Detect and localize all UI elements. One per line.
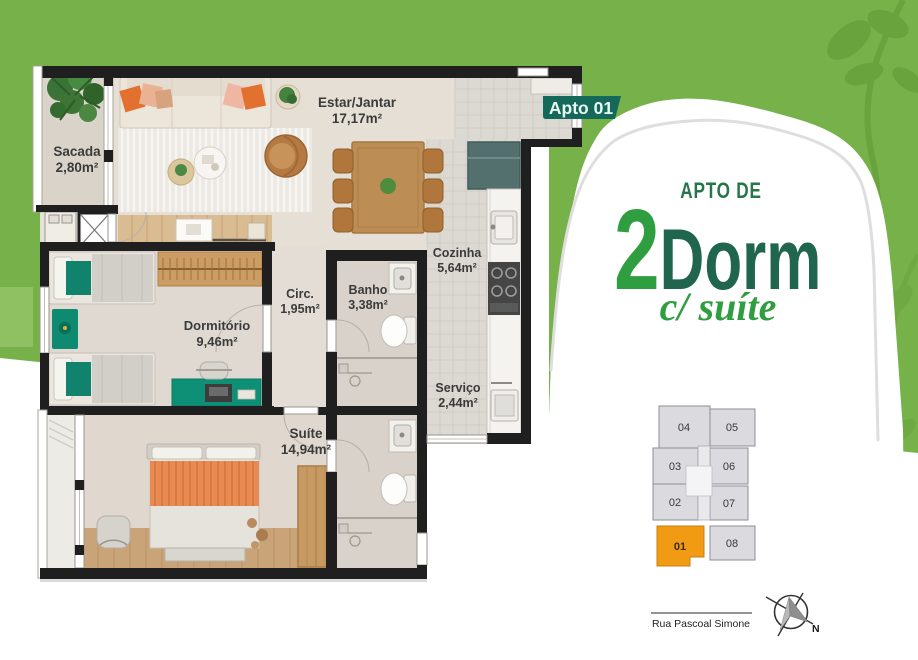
- svg-text:Serviço: Serviço: [435, 381, 481, 395]
- svg-text:Estar/Jantar: Estar/Jantar: [318, 95, 397, 110]
- svg-text:Sacada: Sacada: [53, 144, 101, 159]
- svg-text:06: 06: [723, 461, 735, 473]
- svg-text:04: 04: [678, 422, 690, 434]
- svg-text:03: 03: [669, 461, 681, 473]
- svg-text:9,46m²: 9,46m²: [196, 334, 238, 349]
- svg-text:05: 05: [726, 422, 738, 434]
- svg-text:08: 08: [726, 538, 738, 550]
- svg-text:17,17m²: 17,17m²: [332, 111, 383, 126]
- svg-text:2,80m²: 2,80m²: [56, 160, 99, 175]
- svg-text:Apto 01: Apto 01: [549, 98, 613, 118]
- svg-text:c/ suíte: c/ suíte: [660, 284, 777, 329]
- svg-text:5,64m²: 5,64m²: [437, 261, 477, 275]
- svg-text:Cozinha: Cozinha: [433, 246, 483, 260]
- svg-text:1,95m²: 1,95m²: [280, 302, 320, 316]
- svg-text:APTO DE: APTO DE: [680, 179, 761, 204]
- svg-text:Dormitório: Dormitório: [184, 318, 251, 333]
- svg-text:3,38m²: 3,38m²: [348, 298, 388, 312]
- svg-text:Circ.: Circ.: [286, 287, 314, 301]
- svg-text:02: 02: [669, 497, 681, 509]
- svg-text:2,44m²: 2,44m²: [438, 396, 478, 410]
- svg-text:Suíte: Suíte: [289, 426, 322, 441]
- svg-text:07: 07: [723, 498, 735, 510]
- svg-text:Banho: Banho: [349, 283, 388, 297]
- svg-text:01: 01: [674, 541, 686, 553]
- svg-text:Rua Pascoal Simone: Rua Pascoal Simone: [652, 618, 750, 630]
- svg-text:N: N: [812, 623, 820, 635]
- svg-text:14,94m²: 14,94m²: [281, 442, 332, 457]
